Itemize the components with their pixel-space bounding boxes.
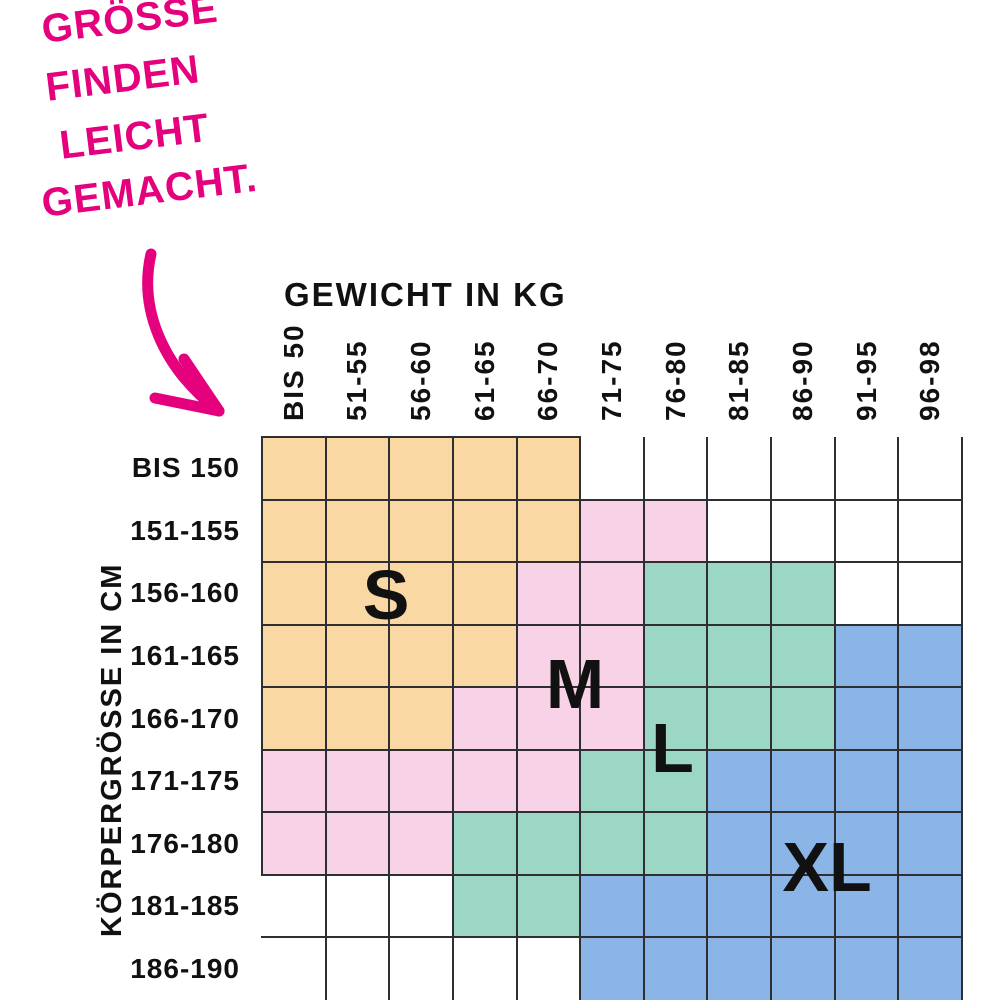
grid-cell-l (707, 625, 771, 688)
grid-line-vertical (706, 437, 708, 1000)
grid-cell-s (517, 437, 581, 500)
tagline-line-1: GRÖSSE (39, 0, 220, 53)
weight-label: 51-55 (342, 321, 372, 421)
grid-line-horizontal (261, 436, 581, 438)
grid-line-horizontal (261, 749, 963, 751)
weight-label: 56-60 (406, 321, 436, 421)
grid-line-vertical (516, 437, 518, 1000)
size-chart-infographic: GRÖSSE FINDEN LEICHT GEMACHT. GEWICHT IN… (0, 0, 1000, 1000)
weight-label: 66-70 (533, 321, 563, 421)
grid-line-vertical (388, 437, 390, 1000)
grid-cell-xl (835, 687, 899, 750)
grid-line-vertical (643, 437, 645, 1000)
grid-cell-m (580, 562, 644, 625)
size-letter-m: M (546, 644, 604, 724)
grid-cell-xl (835, 625, 899, 688)
tagline-line-3: LEICHT (57, 106, 212, 169)
grid-cell-s (326, 437, 390, 500)
grid-cell-s (326, 687, 390, 750)
grid-cell-xl (898, 625, 962, 688)
grid-cell-m (580, 500, 644, 563)
grid-cell-l (707, 562, 771, 625)
size-letter-l: L (651, 708, 694, 788)
height-label: 181-185 (80, 891, 240, 921)
grid-cell-xl (835, 937, 899, 1000)
grid-cell-s (262, 625, 326, 688)
height-label: 186-190 (80, 954, 240, 984)
grid-cell-m (644, 500, 708, 563)
grid-cell-m (326, 812, 390, 875)
height-label: 156-160 (80, 578, 240, 608)
size-letter-xl: XL (782, 827, 871, 907)
x-axis-title: GEWICHT IN KG (284, 276, 567, 314)
grid-cell-l (517, 812, 581, 875)
grid-cell-s (453, 437, 517, 500)
grid-cell-m (326, 750, 390, 813)
grid-cell-xl (898, 750, 962, 813)
weight-label: 81-85 (724, 321, 754, 421)
grid-cell-s (517, 500, 581, 563)
grid-cell-xl (898, 687, 962, 750)
grid-cell-l (707, 687, 771, 750)
grid-cell-l (453, 812, 517, 875)
grid-cell-l (771, 625, 835, 688)
grid-cell-s (453, 500, 517, 563)
grid-line-vertical (325, 437, 327, 1000)
grid-cell-xl (644, 875, 708, 938)
tagline-line-2: FINDEN (43, 47, 202, 111)
grid-cell-xl (898, 875, 962, 938)
grid-cell-xl (707, 812, 771, 875)
grid-cell-xl (898, 812, 962, 875)
grid-cell-m (453, 687, 517, 750)
weight-label: BIS 50 (279, 321, 309, 421)
grid-cell-l (517, 875, 581, 938)
grid-line-vertical (452, 437, 454, 1000)
grid-line-horizontal (261, 499, 963, 501)
grid-cell-xl (644, 937, 708, 1000)
grid-line-horizontal (261, 936, 963, 938)
height-label: BIS 150 (80, 453, 240, 483)
grid-cell-l (453, 875, 517, 938)
grid-cell-xl (580, 937, 644, 1000)
grid-cell-s (326, 500, 390, 563)
grid-cell-s (389, 437, 453, 500)
grid-cell-l (644, 625, 708, 688)
grid-cell-l (771, 562, 835, 625)
height-label: 151-155 (80, 516, 240, 546)
weight-label: 91-95 (852, 321, 882, 421)
curved-arrow-icon (118, 240, 248, 430)
grid-line-horizontal (261, 686, 963, 688)
grid-cell-m (389, 750, 453, 813)
grid-line-vertical (961, 437, 963, 1000)
weight-label: 71-75 (597, 321, 627, 421)
grid-line-vertical (261, 437, 263, 875)
weight-label: 76-80 (661, 321, 691, 421)
grid-cell-s (389, 687, 453, 750)
grid-cell-xl (707, 937, 771, 1000)
weight-label: 61-65 (470, 321, 500, 421)
grid-cell-xl (771, 937, 835, 1000)
grid-cell-l (580, 812, 644, 875)
grid-cell-m (262, 812, 326, 875)
size-letter-s: S (363, 555, 410, 635)
height-label: 176-180 (80, 829, 240, 859)
grid-cell-s (453, 625, 517, 688)
grid-cell-xl (580, 875, 644, 938)
grid-cell-s (262, 687, 326, 750)
grid-cell-l (771, 687, 835, 750)
weight-label: 86-90 (788, 321, 818, 421)
grid-cell-xl (707, 875, 771, 938)
grid-cell-l (580, 750, 644, 813)
grid-cell-s (389, 500, 453, 563)
grid-cell-xl (707, 750, 771, 813)
grid-line-horizontal (261, 811, 963, 813)
grid-cell-s (262, 500, 326, 563)
grid-line-vertical (897, 437, 899, 1000)
weight-label: 96-98 (915, 321, 945, 421)
grid-line-vertical (770, 437, 772, 1000)
grid-cell-l (644, 562, 708, 625)
height-label: 161-165 (80, 641, 240, 671)
grid-line-vertical (834, 437, 836, 1000)
grid-cell-xl (835, 750, 899, 813)
grid-cell-m (517, 750, 581, 813)
grid-cell-m (389, 812, 453, 875)
grid-cell-m (517, 562, 581, 625)
grid-cell-s (453, 562, 517, 625)
grid-cell-xl (771, 750, 835, 813)
grid-cell-l (644, 812, 708, 875)
grid-cell-xl (898, 937, 962, 1000)
grid-cell-s (262, 437, 326, 500)
height-label: 171-175 (80, 766, 240, 796)
height-label: 166-170 (80, 704, 240, 734)
grid-cell-s (262, 562, 326, 625)
grid-cell-m (453, 750, 517, 813)
grid-cell-m (262, 750, 326, 813)
